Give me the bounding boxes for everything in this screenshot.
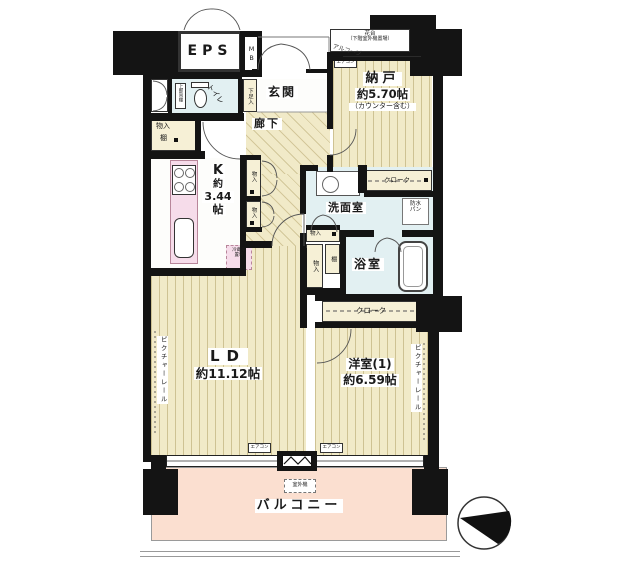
door-arc-icon [272,214,304,246]
closet-d-label: 物入 [307,248,322,284]
door-arc-icon [387,238,401,252]
closet-c-label: 物入 [310,231,321,237]
door-arc-icon [262,202,274,214]
entrance-label: 玄関 [266,86,298,99]
corridor-label: 廊下 [252,118,282,130]
shoe-cabinet-label: 下足入 [244,81,256,111]
toilet-shelf-label: 上部吊棚 [177,84,182,102]
hall-closet-label: 物入 [156,123,170,131]
washroom-label: 洗面室 [326,202,366,214]
storage-room-note: （カウンター含む） [349,103,416,111]
picture-rail-left-label: ピクチャーレール [157,336,168,404]
picture-rail-right-label: ピクチャーレール [411,344,422,412]
door-arc-icon [258,44,281,70]
symbols-overlay [0,0,640,569]
shelf-marker-icon [250,221,254,225]
storage-room-size: 約5.70帖 [355,88,410,101]
storage-room-label: 納戸 約5.70帖 （カウンター含む） [333,72,432,111]
hatch-zigzag-icon [284,457,311,464]
kitchen-k: K [211,164,225,178]
door-arc-icon [330,129,356,155]
closet-b-label: 物入 [247,203,260,221]
eps-label: EPS [180,33,240,70]
porch-outline [258,37,329,52]
ld-name: LD [208,348,248,365]
door-arc-icon [281,44,310,70]
ld-size: 約11.12帖 [194,367,263,381]
cloak-north-label: クローク [366,172,428,189]
floorplan: エアコン エアコン エアコン 室外機 MB [0,0,640,569]
shelf-d-label: 棚 [326,248,339,270]
door-arc-icon [262,161,277,178]
door-arc-icon [212,9,240,30]
kitchen-size: 3.44 [202,191,233,203]
door-arc-icon [184,9,212,30]
balcony-name: バルコニー [255,499,344,513]
door-arc-icon [375,238,387,252]
door-arc-icon [153,81,167,95]
fridge-line2: 置場 [235,254,244,259]
storage-room-name: 納戸 [363,72,401,86]
shelf-marker-icon [424,178,428,182]
door-arc-icon [323,215,337,232]
cloak-south-label: クローク [322,303,420,320]
western-size: 約6.59帖 [341,374,399,387]
waterproof-line2: パン [410,207,421,213]
fridge-label: 冷蔵庫 置場 [227,249,251,259]
western-room-label: 洋室(1) 約6.59帖 [315,358,425,387]
hall-shelf-label: 棚 [160,135,167,143]
kitchen-about: 約 [211,179,225,190]
shelf-marker-icon [250,190,254,194]
door-arc-icon [262,180,277,196]
kitchen-unit: 帖 [211,204,226,216]
living-dining-label: LD 約11.12帖 [168,348,288,380]
compass-icon [458,497,511,549]
western-name: 洋室(1) [346,358,393,371]
closet-a-label: 物入 [247,162,260,190]
shelf-marker-icon [332,232,336,236]
door-arc-icon [262,216,274,227]
balcony-label: バルコニー [151,497,447,515]
bathroom-label: 浴室 [352,258,384,271]
door-arc-icon [203,122,240,159]
waterproof-pan-label: 防水 パン [403,201,428,213]
flower-stand-label: 花台 （下階室外機置場） [331,31,409,43]
door-arc-icon [153,97,167,111]
kitchen-label: K 約 3.44 帖 [198,164,238,216]
shelf-marker-icon [174,138,178,142]
flower-stand-line2: （下階室外機置場） [347,37,392,43]
door-arc-icon [311,215,323,232]
